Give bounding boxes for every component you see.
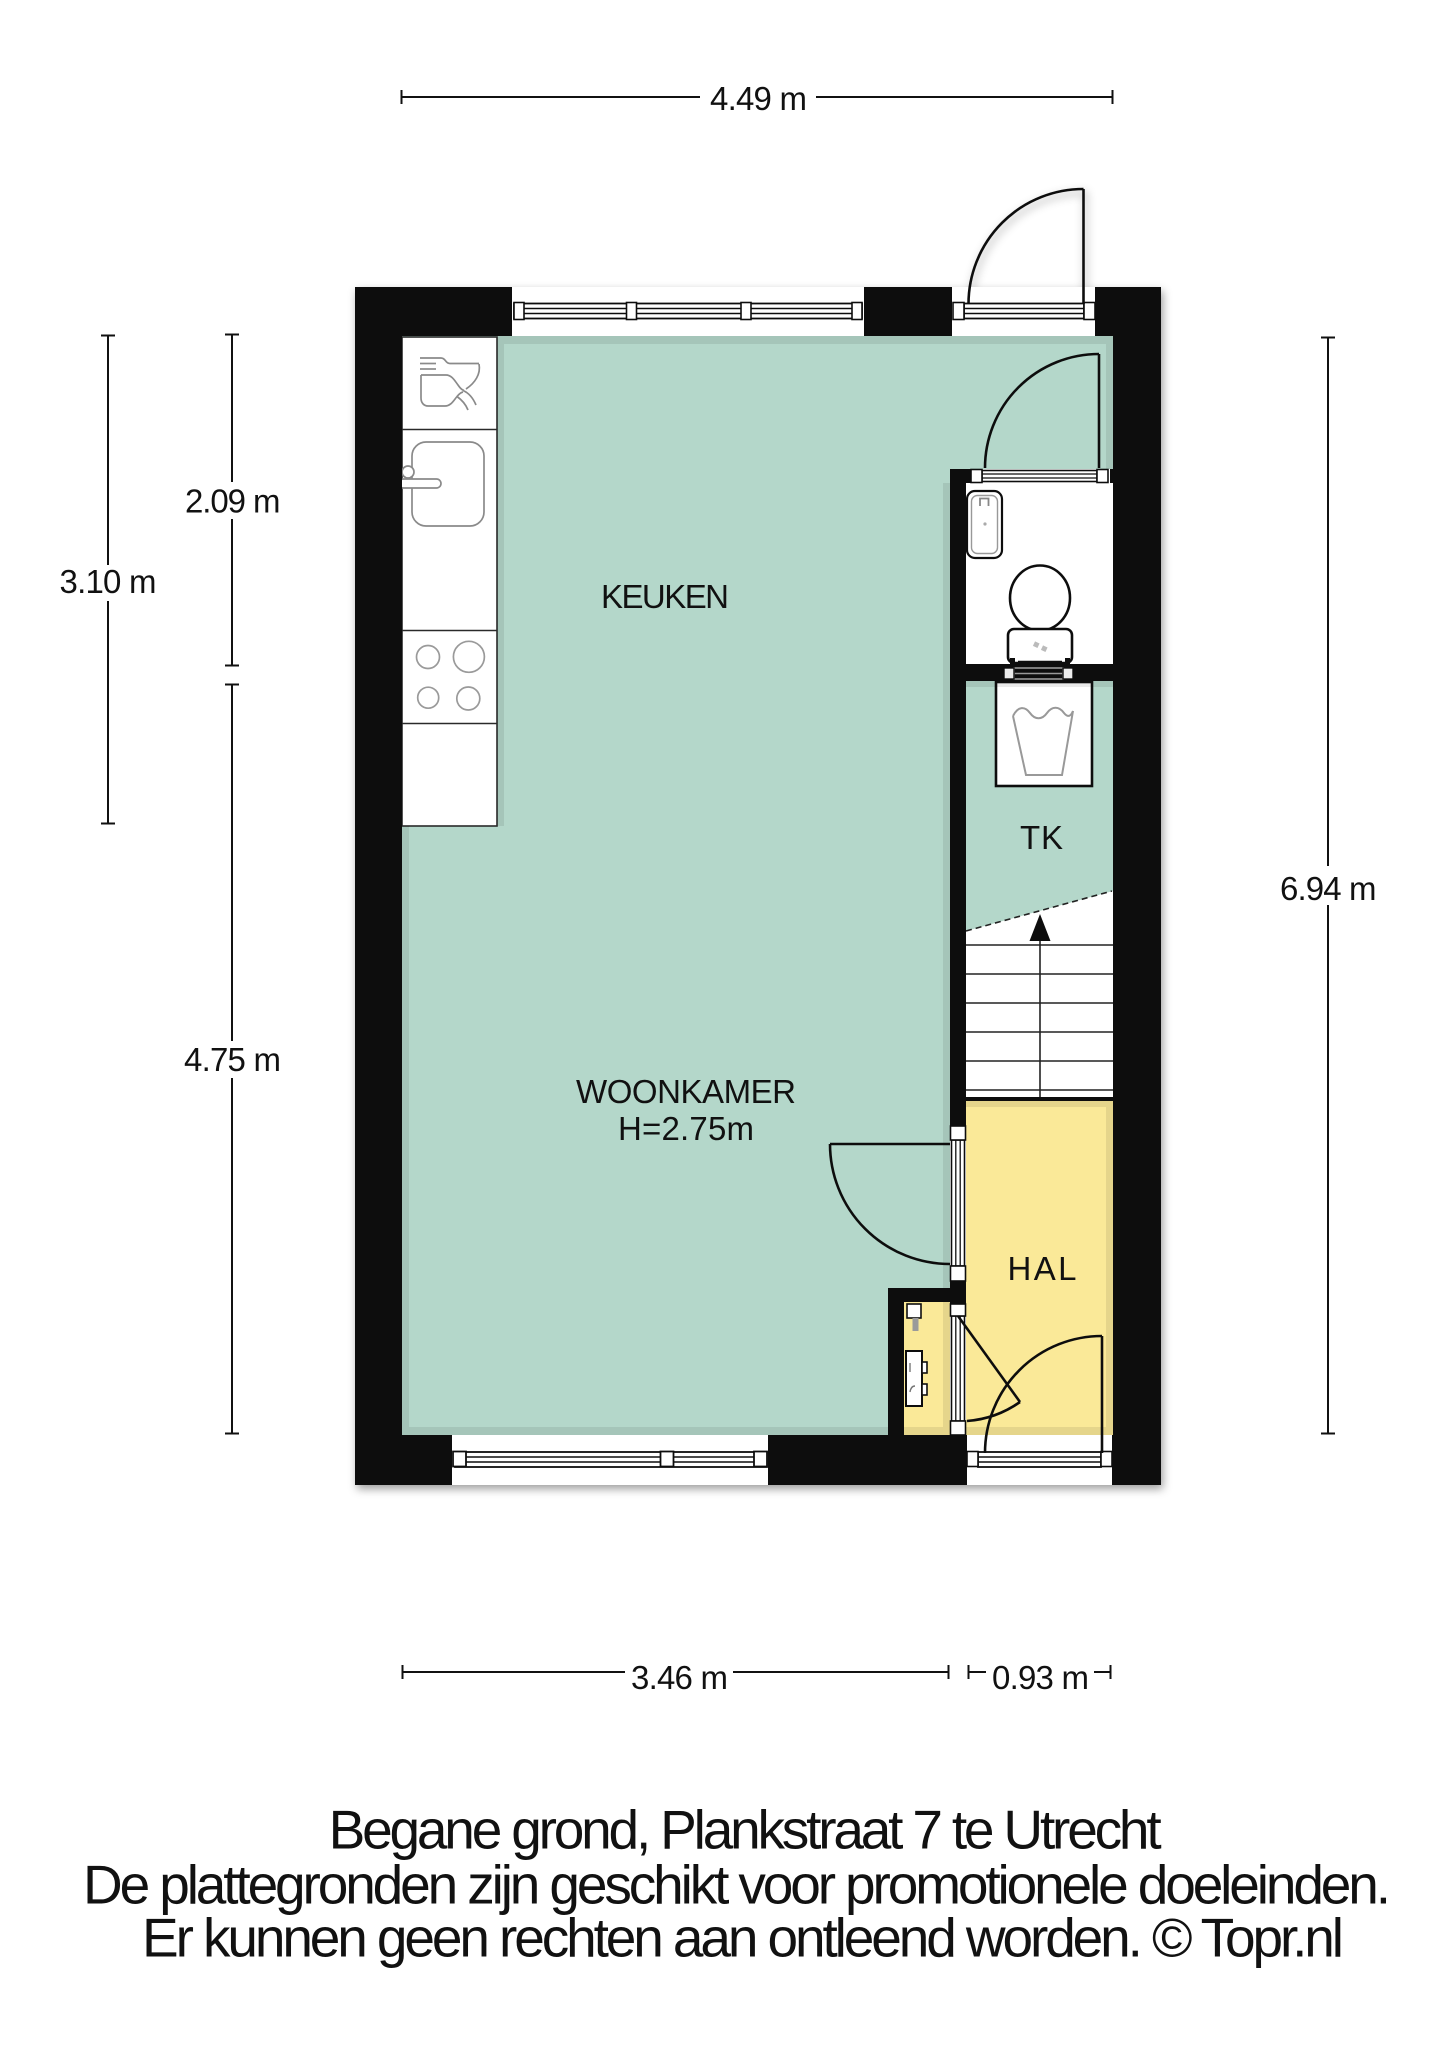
svg-text:4.49 m: 4.49 m bbox=[710, 80, 807, 117]
svg-text:TK: TK bbox=[1020, 819, 1063, 856]
svg-text:H=2.75m: H=2.75m bbox=[618, 1110, 754, 1147]
svg-text:KEUKEN: KEUKEN bbox=[601, 578, 729, 615]
svg-text:3.46 m: 3.46 m bbox=[631, 1659, 728, 1696]
svg-text:3.10 m: 3.10 m bbox=[60, 563, 157, 600]
svg-text:4.75 m: 4.75 m bbox=[184, 1041, 281, 1078]
svg-text:Begane grond, Plankstraat 7 te: Begane grond, Plankstraat 7 te Utrecht bbox=[329, 1799, 1162, 1861]
svg-text:6.94 m: 6.94 m bbox=[1280, 870, 1377, 907]
svg-text:2.09 m: 2.09 m bbox=[185, 483, 281, 520]
svg-text:Er kunnen geen rechten aan ont: Er kunnen geen rechten aan ontleend word… bbox=[142, 1907, 1344, 1969]
svg-text:HAL: HAL bbox=[1008, 1250, 1077, 1287]
svg-text:WOONKAMER: WOONKAMER bbox=[576, 1073, 796, 1110]
svg-text:0.93 m: 0.93 m bbox=[992, 1659, 1089, 1696]
